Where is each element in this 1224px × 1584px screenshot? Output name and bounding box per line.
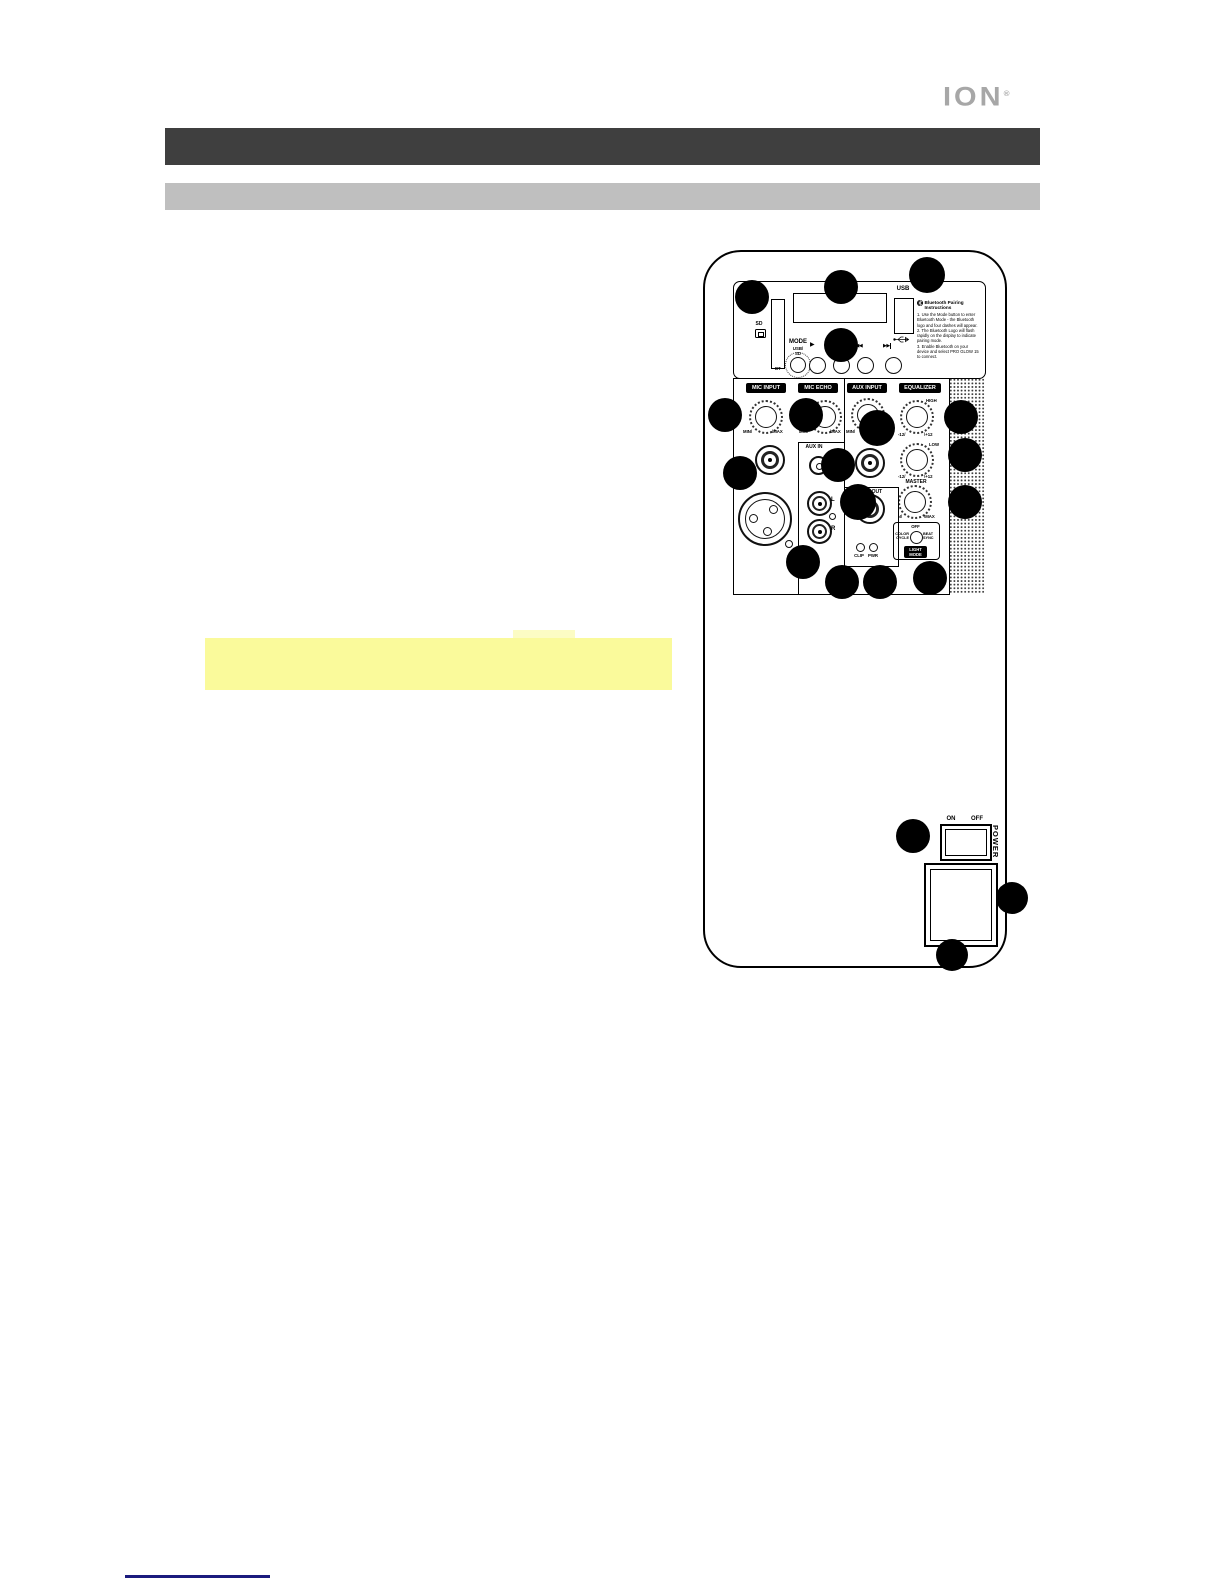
- mode-pos-bt: BT: [775, 366, 781, 371]
- callout-marker: [824, 270, 858, 304]
- rca-right-label: R: [831, 526, 835, 533]
- power-on-label: ON: [941, 816, 961, 823]
- callout-marker: [909, 257, 945, 293]
- callout-marker: [913, 561, 947, 595]
- bluetooth-instructions: Bluetooth Pairing Instructions 1. Use th…: [917, 300, 980, 360]
- callout-marker: [825, 565, 859, 599]
- mic-quarter-inch-jack: [755, 445, 785, 475]
- highlighted-text-block: [205, 638, 672, 690]
- eq-high-knob: [900, 400, 934, 434]
- sd-card-icon: [755, 329, 766, 338]
- bt-step-1: 1. Use the Mode button to enter Bluetoot…: [917, 312, 980, 328]
- usb-icon: [892, 335, 912, 344]
- section-header-bar: [165, 128, 1040, 165]
- callout-marker: [948, 485, 982, 519]
- power-label: POWER: [991, 825, 1000, 867]
- rca-input-right: [807, 519, 832, 544]
- section-label-mic-echo: MIC ECHO: [798, 383, 838, 393]
- next-track-button: [885, 357, 902, 374]
- battery-compartment: [924, 863, 998, 947]
- section-label-equalizer: EQUALIZER: [899, 383, 941, 393]
- ion-logo: ION®: [943, 81, 1047, 107]
- section-label-aux-input: AUX INPUT: [847, 383, 887, 393]
- callout-marker: [944, 400, 978, 434]
- callout-marker: [786, 545, 820, 579]
- rca-left-label: L: [831, 497, 835, 504]
- subsection-header-bar: [165, 183, 1040, 210]
- pwr-led-label: PWR: [865, 553, 881, 558]
- manual-page: ION® SD USB Bl: [0, 0, 1224, 1584]
- eq-high-max: \+12: [924, 432, 932, 437]
- callout-marker: [824, 328, 858, 362]
- light-mode-off: OFF: [893, 524, 938, 529]
- section-label-mic-input: MIC INPUT: [746, 383, 786, 393]
- previous-track-button: [857, 357, 874, 374]
- mic-xlr-input: [738, 492, 792, 546]
- clip-led: [856, 543, 865, 552]
- power-off-label: OFF: [966, 816, 988, 823]
- eq-low-label: LOW: [929, 442, 939, 447]
- play-icon: ▶: [810, 341, 815, 348]
- aux-quarter-inch-jack: [855, 448, 885, 478]
- mic-input-max: \MAX: [772, 429, 783, 434]
- master-max: \MAX: [924, 514, 935, 519]
- eq-low-knob: [900, 443, 934, 477]
- rca-input-left: [807, 491, 832, 516]
- footer-link-line: [125, 1575, 270, 1578]
- callout-marker: [996, 882, 1028, 914]
- aux-in-label: AUX IN: [799, 444, 829, 450]
- aux-input-min: MIN/: [846, 429, 855, 434]
- light-mode-beat-sync: BEAT SYNC: [923, 532, 937, 541]
- bt-step-2: 2. The Bluetooth Logo will flash rapidly…: [917, 328, 980, 344]
- callout-marker: [723, 456, 757, 490]
- next-track-icon: ▶▶: [883, 343, 891, 349]
- bluetooth-icon: [917, 300, 923, 306]
- panel-screw: [785, 540, 793, 548]
- sd-label: SD: [751, 321, 767, 327]
- usb-label: USB: [890, 286, 916, 293]
- light-mode-button: [910, 531, 923, 544]
- bt-title-line2: Instructions: [925, 305, 952, 310]
- callout-marker: [821, 448, 855, 482]
- callout-marker: [840, 484, 876, 520]
- callout-marker: [936, 939, 968, 971]
- panel-screw: [829, 513, 836, 520]
- mic-input-min: MIN/: [743, 429, 752, 434]
- light-mode-badge: LIGHT MODE: [904, 546, 927, 558]
- light-mode-color-cycle: COLOR CYCLE: [894, 532, 909, 541]
- usb-port: [894, 298, 914, 334]
- callout-marker: [735, 280, 769, 314]
- play-button: [809, 357, 826, 374]
- sd-card-slot: [771, 299, 785, 369]
- callout-marker: [863, 565, 897, 599]
- power-led: [869, 543, 878, 552]
- callout-marker: [896, 819, 930, 853]
- registered-mark: ®: [1004, 89, 1010, 97]
- bt-step-3: 3. Enable Bluetooth on your device and s…: [917, 344, 980, 360]
- power-switch: [940, 824, 992, 861]
- control-panel-diagram: SD USB Bluetooth Pairing Instructions 1.…: [695, 245, 1010, 973]
- mic-echo-max: \MAX: [830, 429, 841, 434]
- eq-high-label: HIGH: [926, 398, 937, 403]
- callout-marker: [859, 410, 895, 446]
- mode-knob: [785, 352, 811, 378]
- eq-high-min: -12/: [898, 432, 905, 437]
- ion-logo-text: ION: [943, 83, 1004, 112]
- callout-marker: [708, 398, 742, 432]
- callout-marker: [789, 398, 823, 432]
- callout-marker: [948, 438, 982, 472]
